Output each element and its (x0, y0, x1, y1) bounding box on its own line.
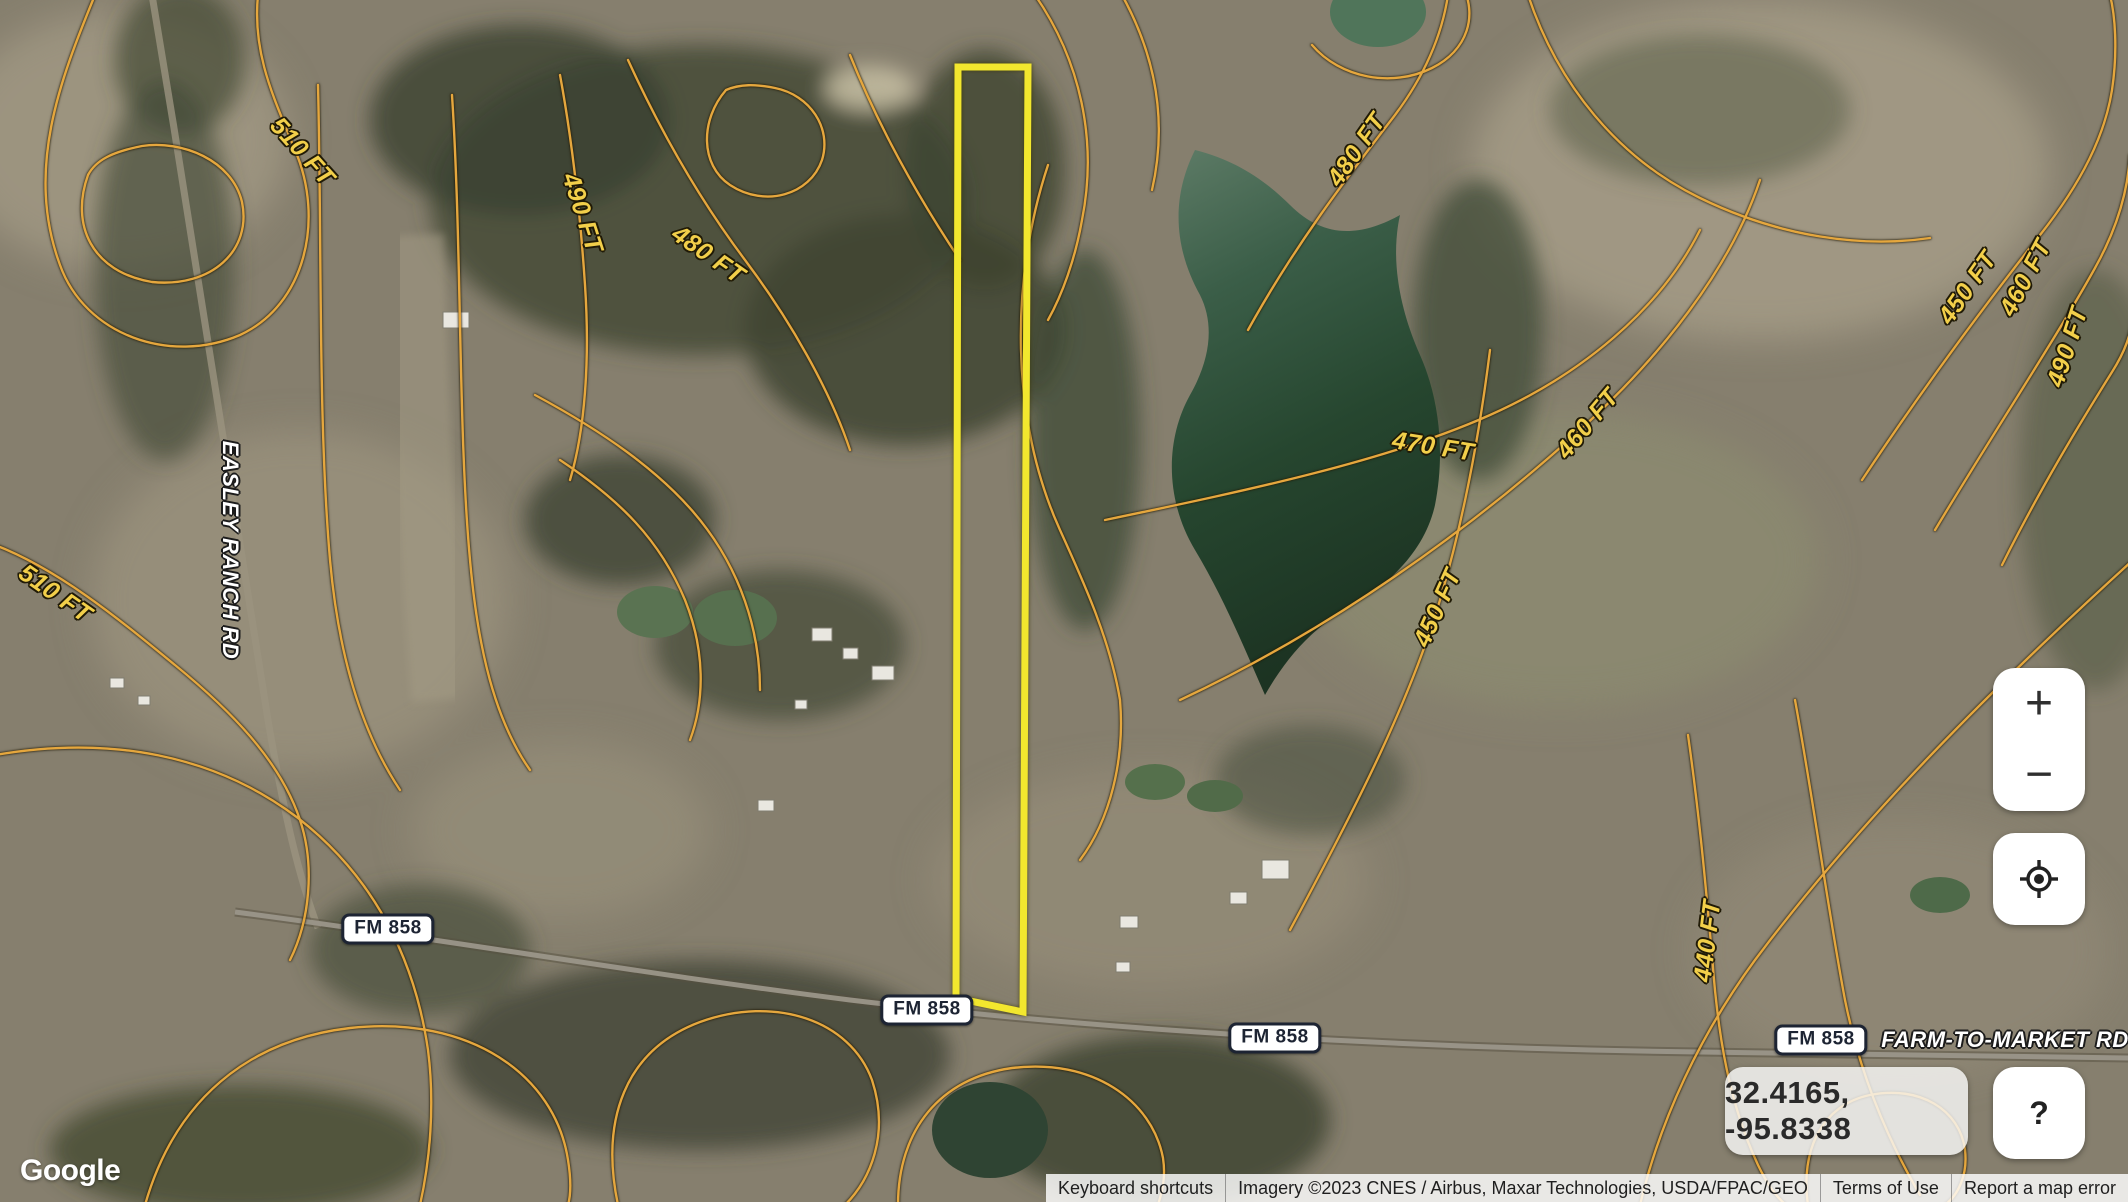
satellite-map-canvas[interactable] (0, 0, 2128, 1202)
terms-of-use-link[interactable]: Terms of Use (1820, 1174, 1951, 1202)
crosshair-icon (2019, 859, 2059, 899)
google-logo[interactable]: Google (20, 1154, 120, 1188)
zoom-out-button[interactable]: − (1993, 740, 2085, 812)
imagery-attribution: Imagery ©2023 CNES / Airbus, Maxar Techn… (1225, 1174, 1820, 1202)
zoom-control: + − (1993, 668, 2085, 811)
report-map-error-link[interactable]: Report a map error (1951, 1174, 2128, 1202)
attribution-bar: Keyboard shortcuts Imagery ©2023 CNES / … (1046, 1174, 2128, 1202)
my-location-button[interactable] (1993, 833, 2085, 925)
zoom-in-button[interactable]: + (1993, 668, 2085, 740)
coordinates-readout: 32.4165, -95.8338 (1725, 1067, 1968, 1155)
map-viewport[interactable]: 510 FT490 FT480 FT480 FT450 FT460 FT490 … (0, 0, 2128, 1202)
keyboard-shortcuts-button[interactable]: Keyboard shortcuts (1046, 1174, 1225, 1202)
help-button[interactable]: ? (1993, 1067, 2085, 1159)
